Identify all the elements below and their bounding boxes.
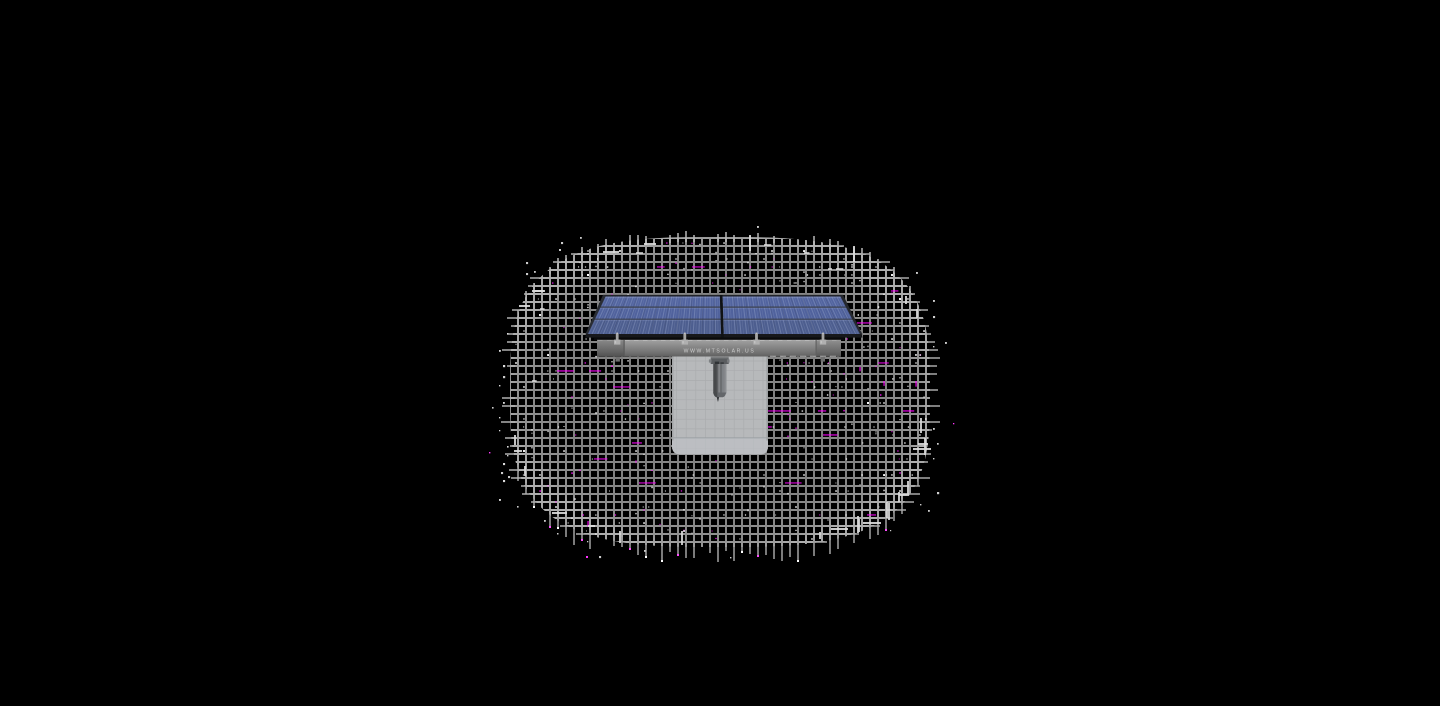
svg-text:WWW.MTSOLAR.US: WWW.MTSOLAR.US [684, 348, 756, 354]
